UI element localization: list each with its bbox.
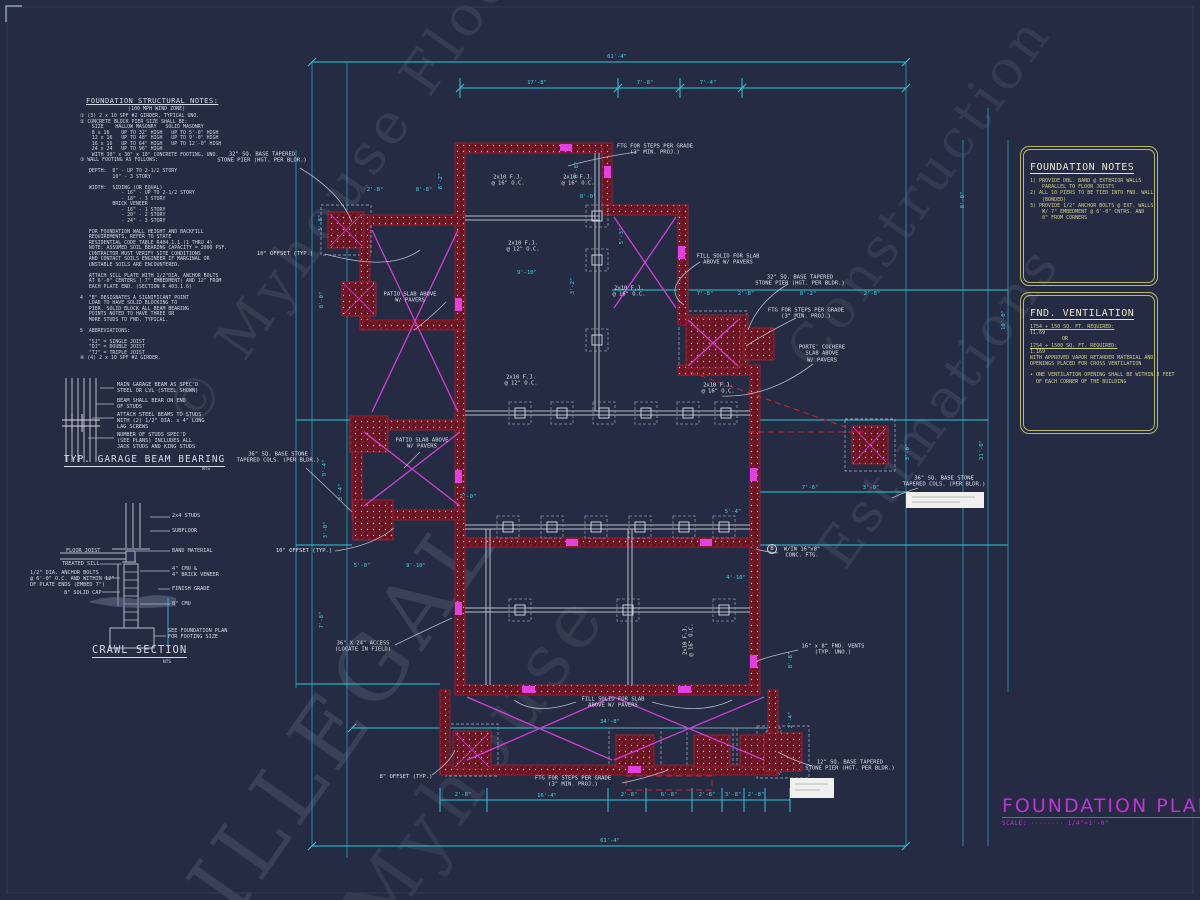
plan-annotation: FILL SOLID FOR SLAB ABOVE W/ PAVERS — [697, 254, 760, 267]
plan-annotation: PATIO SLAB ABOVE W/ PAVERS — [396, 438, 449, 451]
plan-annotation: PORTE' COCHERE SLAB ABOVE W/ PAVERS — [799, 344, 845, 363]
dimension-label: 5'-4" — [725, 509, 742, 515]
foundation-plan-sheet: © Myhouse Floorplans.com Construction Es… — [0, 0, 1200, 900]
dimension-label: 7'-6" — [802, 485, 819, 491]
joist-label: 2x10 F.J. @ 12" O.C. — [506, 241, 539, 254]
girder-lines — [465, 153, 750, 685]
crawl-section-title: CRAWL SECTION — [92, 644, 187, 658]
dimension-label: 2'-0" — [460, 494, 477, 500]
plan-annotation: FTG FOR STEPS PER GRADE (3" MIN. PROJ.) — [768, 308, 844, 321]
dimension-label: 2'-8" — [621, 792, 638, 798]
dimension-label: 2'-4" — [788, 712, 794, 729]
dimension-label: 8'-8" — [574, 162, 580, 179]
dimension-label: 2'-8" — [748, 792, 765, 798]
dimension-label: 2'-8" — [699, 792, 716, 798]
dimension-label: 7'-4" — [700, 80, 717, 86]
girder-posts — [497, 205, 737, 621]
joist-label: 2x10 F.J. @ 16" O.C. — [683, 623, 696, 656]
joist-label: 2x10 F.J. @ 16" O.C. — [491, 175, 524, 188]
structural-notes-title: FOUNDATION STRUCTURAL NOTES: — [86, 96, 218, 105]
dimension-label: 7'-8" — [319, 612, 325, 629]
garage-detail-title: TYP. GARAGE BEAM BEARING — [64, 454, 225, 467]
crawl-section-scale: NTS — [163, 660, 171, 665]
plan-annotation: 10" OFFSET (TYP.) — [276, 548, 332, 554]
crawl-callout: 8" CMU — [172, 601, 191, 607]
dimension-label: 8'-2" — [800, 291, 817, 297]
garage-callout: MAIN GARAGE BEAM AS SPEC'D STEEL OR LVL … — [117, 382, 198, 394]
dimension-label: 3'-8" — [725, 792, 742, 798]
crawl-callout: 4" CMU & 4" BRICK VENEER — [172, 566, 219, 578]
joist-label: 2x10 F.J. @ 16" O.C. — [612, 286, 645, 299]
dimension-label: 5'-3" — [619, 228, 625, 245]
plan-annotation: FTG FOR STEPS PER GRADE (3" MIN. PROJ.) — [617, 144, 693, 157]
dimension-label: 3'-4" — [338, 484, 344, 501]
foundation-walls — [352, 143, 778, 775]
dimension-label: 2'-8" — [864, 291, 881, 297]
dimension-label: 16'-4" — [537, 793, 557, 799]
garage-detail-drawing — [62, 378, 114, 462]
crawl-callout: 1/2" DIA. ANCHOR BOLTS @ 6'-0" O.C. AND … — [30, 570, 114, 588]
dimension-label: 8'-8" — [416, 187, 433, 193]
dimension-label: 6'-8" — [661, 792, 678, 798]
crawl-callout: TREATED SILL — [62, 561, 99, 567]
crawl-callout: FLOOR JOIST — [66, 548, 100, 554]
dimension-label: 7'-8" — [697, 291, 714, 297]
dimension-label: 17'-8" — [527, 80, 547, 86]
dimension-label: 4'-10" — [726, 575, 746, 581]
vent-markers — [455, 144, 757, 773]
hidden-edge-dashed — [626, 372, 866, 790]
garage-detail-scale: NTS — [202, 467, 210, 472]
dimension-label: 3'-2" — [570, 278, 576, 295]
plan-annotation: FILL SOLID FOR SLAB ABOVE W/ PAVERS — [582, 697, 645, 710]
plan-annotation: 36" SQ. BASE STONE TAPERED COLS. (PER BL… — [237, 452, 320, 465]
plan-annotation: 8" OFFSET (TYP.) — [380, 774, 433, 780]
ventilation-box: FND. VENTILATION 1754 ÷ 150 SQ. FT. REQU… — [1020, 292, 1158, 434]
structural-notes-subtitle: (100 MPH WIND ZONE) — [128, 106, 185, 112]
sheet-scale: SCALE: ········ 1/4"=1'-0" — [1002, 820, 1109, 827]
dimension-label: 7'-8" — [637, 80, 654, 86]
joist-label: 2x10 F.J. @ 16" O.C. — [701, 383, 734, 396]
crawl-callout: SUBFLOOR — [172, 528, 197, 534]
dimension-label: 3'-0" — [323, 522, 329, 539]
crawl-callout: BAND MATERIAL — [172, 548, 213, 554]
crawl-callout: FINISH GRADE — [172, 586, 209, 592]
crawl-callout: SEE FOUNDATION PLAN FOR FOOTING SIZE — [168, 628, 227, 640]
dimension-label: 2'-8" — [367, 187, 384, 193]
dimension-label: 3'-0" — [905, 444, 911, 461]
crawl-callout: 2x4 STUDS — [172, 513, 200, 519]
dimension-label: 3'-0" — [863, 485, 880, 491]
joist-label: 2x10 F.J. @ 12" O.C. — [504, 375, 537, 388]
plan-annotation: W/IN 16"x8" CONC. FTG. — [784, 547, 820, 560]
plan-annotation: 36" SQ. BASE STONE TAPERED COLS. (PER BL… — [903, 476, 986, 489]
dimension-label: 34'-8" — [600, 719, 620, 725]
ventilation-bullet: • ONE VENTILATION OPENING SHALL BE WITHI… — [1030, 372, 1148, 384]
plan-annotation: PATIO SLAB ABOVE W/ PAVERS — [384, 292, 437, 305]
b-point-load-mark: B — [767, 544, 777, 554]
foundation-notes-box: FOUNDATION NOTES 1) PROVIDE DBL. BAND @ … — [1020, 146, 1158, 286]
plan-annotation: 32" SQ. BASE TAPERED STONE PIER (HGT. PE… — [755, 275, 844, 288]
dimension-label: 3'-8" — [318, 215, 324, 232]
garage-callout: BEAM SHALL BEAR ON END OF STUDS — [117, 398, 186, 410]
sheet-title: FOUNDATION PLAN — [1002, 795, 1200, 818]
dimension-label: 8'-0" — [580, 194, 597, 200]
foundation-notes-title: FOUNDATION NOTES — [1030, 162, 1134, 174]
dimension-label: 61'-4" — [600, 838, 620, 844]
plan-annotation: FTG FOR STEPS PER GRADE (3" MIN. PROJ.) — [535, 776, 611, 789]
ventilation-vapor: WITH APPROVED VAPOR RETARDER MATERIAL AN… — [1030, 355, 1148, 367]
structural-notes-body: ① (3) 2 x 10 SPF #2 GIRDER, TYPICAL UNO.… — [80, 114, 227, 362]
dimension-label: 31'-0" — [979, 440, 985, 460]
dimension-label: 8'-0" — [960, 192, 966, 209]
plan-annotation: 10" OFFSET (TYP.) — [257, 251, 313, 257]
ventilation-title: FND. VENTILATION — [1030, 308, 1134, 320]
dimension-label: 9'-10" — [517, 270, 537, 276]
plan-annotation: 16" x 8" FND. VENTS (TYP. UNO.) — [802, 644, 865, 657]
dimension-label: 8'-8" — [788, 652, 794, 669]
dimension-label: 2'-8" — [738, 291, 755, 297]
plan-annotation: 32" SQ. BASE TAPERED STONE PIER (HGT. PE… — [217, 152, 306, 165]
corner-mark-icon — [6, 6, 22, 22]
plan-annotation: 12" SQ. BASE TAPERED STONE PIER (HGT. PE… — [805, 760, 894, 773]
dimension-label: 2'-8" — [455, 792, 472, 798]
garage-callout: ATTACH STEEL BEAMS TO STUDS WITH (2) 1/2… — [117, 412, 204, 430]
dimension-lines — [296, 58, 1008, 850]
crawl-callout: 8" SOLID CAP — [64, 590, 101, 596]
dimension-label: 9'-4" — [322, 460, 328, 477]
foundation-notes-body: 1) PROVIDE DBL. BAND @ EXTERIOR WALLS PA… — [1030, 178, 1148, 221]
dimension-label: 61'-4" — [607, 54, 627, 60]
garage-callout: NUMBER OF STUDS SPEC'D (SEE PLANS) INCLU… — [117, 432, 195, 450]
dimension-label: 9'-10" — [406, 563, 426, 569]
dimension-label: 8'-2" — [438, 173, 444, 190]
dimension-label: 8'-0" — [319, 292, 325, 309]
dimension-label: 10'-0" — [1001, 310, 1007, 330]
dimension-label: 5'-0" — [354, 563, 371, 569]
plan-annotation: 36" X 24" ACCESS (LOCATE IN FIELD) — [335, 641, 391, 654]
